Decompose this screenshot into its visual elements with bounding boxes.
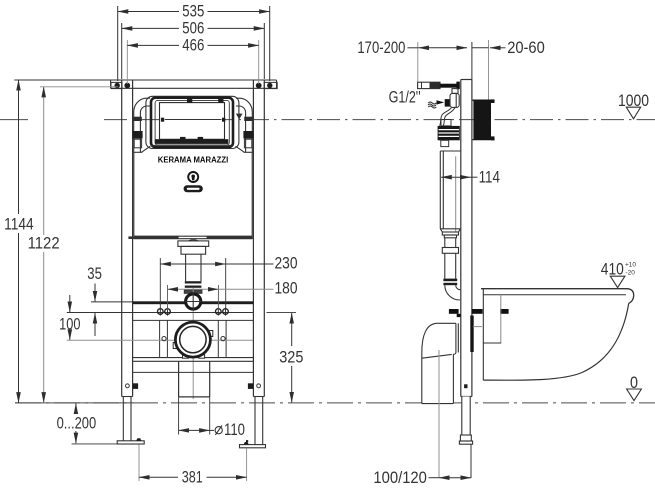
svg-text:100/120: 100/120 [373, 469, 427, 487]
svg-text:506: 506 [182, 19, 204, 37]
svg-text:325: 325 [279, 348, 303, 366]
svg-text:1122: 1122 [28, 235, 60, 253]
svg-text:1144: 1144 [4, 215, 34, 233]
svg-text:G1/2'': G1/2'' [389, 88, 421, 106]
svg-text:535: 535 [182, 2, 204, 20]
svg-text:1000: 1000 [618, 92, 649, 110]
svg-text:230: 230 [275, 254, 298, 272]
svg-text:+10: +10 [625, 262, 636, 269]
svg-text:180: 180 [275, 280, 298, 298]
svg-text:-20: -20 [626, 269, 636, 276]
svg-text:110: 110 [224, 421, 245, 439]
svg-text:170-200: 170-200 [357, 39, 405, 57]
svg-text:35: 35 [87, 265, 102, 283]
svg-text:0...200: 0...200 [57, 414, 97, 432]
svg-text:0: 0 [630, 374, 638, 392]
svg-text:100: 100 [59, 316, 80, 334]
svg-text:466: 466 [182, 36, 204, 54]
svg-text:410: 410 [601, 261, 624, 279]
svg-text:KERAMA MARAZZI: KERAMA MARAZZI [158, 155, 229, 165]
svg-text:20-60: 20-60 [507, 39, 545, 57]
svg-text:381: 381 [182, 469, 203, 487]
svg-text:114: 114 [479, 168, 500, 186]
